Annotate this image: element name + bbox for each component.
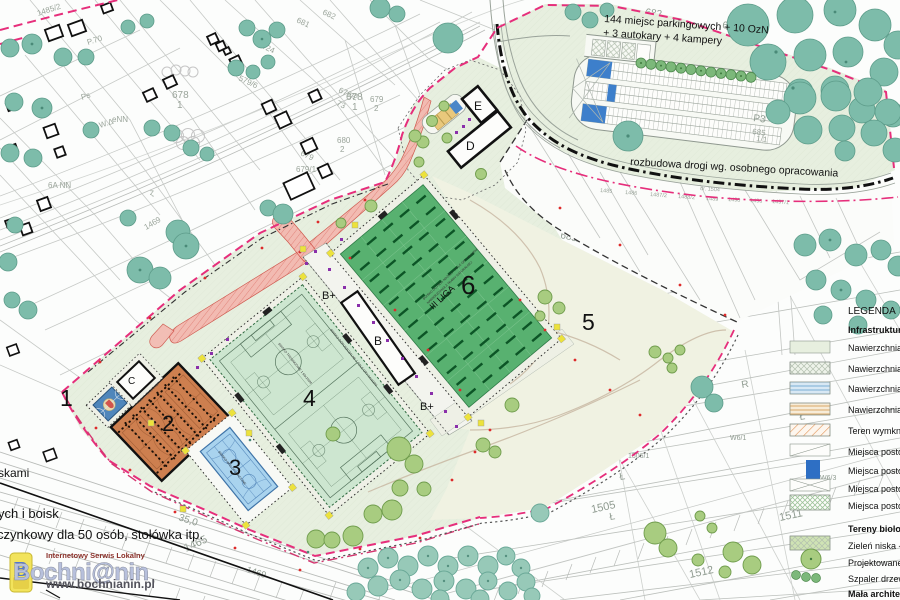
svg-text:ɀ: ɀ bbox=[150, 188, 154, 197]
svg-text:2: 2 bbox=[162, 411, 174, 436]
svg-text:1485: 1485 bbox=[600, 188, 613, 195]
svg-text:Projektowane drzewa: Projektowane drzewa bbox=[848, 558, 900, 568]
svg-text:Szpaler drzew istn.: Szpaler drzew istn. bbox=[848, 574, 900, 584]
svg-text:eNN: eNN bbox=[112, 115, 128, 124]
svg-text:1: 1 bbox=[60, 385, 73, 411]
svg-text:C: C bbox=[128, 376, 135, 387]
svg-text:www.bochnianin.pl: www.bochnianin.pl bbox=[45, 577, 155, 591]
svg-text:B+: B+ bbox=[420, 401, 434, 413]
svg-text:Miejsca postojowe zwykłe: Miejsca postojowe zwykłe bbox=[848, 447, 900, 457]
svg-text:6A NN: 6A NN bbox=[48, 181, 71, 190]
svg-text:1486: 1486 bbox=[625, 190, 638, 197]
svg-text:1496: 1496 bbox=[750, 198, 763, 205]
svg-text:679: 679 bbox=[370, 95, 384, 104]
svg-text:Miejsca postojowe OzN: Miejsca postojowe OzN bbox=[848, 466, 900, 476]
svg-text:P3: P3 bbox=[753, 113, 767, 125]
svg-text:2: 2 bbox=[374, 104, 379, 113]
svg-text:1: 1 bbox=[352, 102, 358, 113]
svg-text:LEGENDA: LEGENDA bbox=[848, 306, 896, 317]
svg-text:6: 6 bbox=[461, 270, 475, 300]
svg-text:W6/1: W6/1 bbox=[730, 435, 746, 442]
svg-text:1: 1 bbox=[177, 100, 183, 111]
svg-text:ych i boisk: ych i boisk bbox=[0, 506, 59, 521]
svg-text:Nawierzchnia sportowa pol.: Nawierzchnia sportowa pol. bbox=[848, 384, 900, 394]
svg-text:skami: skami bbox=[0, 466, 29, 480]
svg-text:5: 5 bbox=[582, 309, 595, 335]
svg-text:1487/2: 1487/2 bbox=[650, 192, 667, 199]
svg-text:Teren wymknięty z oprac.: Teren wymknięty z oprac. bbox=[848, 426, 900, 436]
svg-text:1/1: 1/1 bbox=[756, 134, 769, 144]
svg-text:Nawierzchnia z kostki bet.: Nawierzchnia z kostki bet. bbox=[848, 364, 900, 374]
svg-text:Miejsca postojowe autob.: Miejsca postojowe autob. bbox=[848, 484, 900, 494]
svg-text:B: B bbox=[374, 334, 382, 348]
svg-text:4: 4 bbox=[303, 385, 316, 411]
svg-text:Tereny biologicznie czynne: Tereny biologicznie czynne bbox=[848, 524, 900, 534]
svg-text:Miejsca postojowe kamper: Miejsca postojowe kamper bbox=[848, 501, 900, 511]
svg-text:B+: B+ bbox=[322, 290, 336, 302]
svg-text:czynkowy dla 50 osób, stołówka: czynkowy dla 50 osób, stołówka itp. bbox=[0, 527, 203, 542]
svg-text:Zieleń niska - trawniki: Zieleń niska - trawniki bbox=[848, 541, 900, 551]
svg-text:1506/1: 1506/1 bbox=[628, 453, 650, 460]
svg-text:Mała architektura: Mała architektura bbox=[848, 589, 900, 599]
svg-text:E: E bbox=[474, 99, 482, 113]
svg-text:Nawierzchnia utwardzona: Nawierzchnia utwardzona bbox=[848, 343, 900, 353]
svg-text:680: 680 bbox=[337, 136, 351, 145]
svg-text:Infrastruktura: Infrastruktura bbox=[848, 325, 900, 335]
svg-text:2: 2 bbox=[340, 145, 345, 154]
svg-text:Nawierzchnia sportowa tr.: Nawierzchnia sportowa tr. bbox=[848, 405, 900, 415]
svg-text:D: D bbox=[466, 139, 475, 153]
